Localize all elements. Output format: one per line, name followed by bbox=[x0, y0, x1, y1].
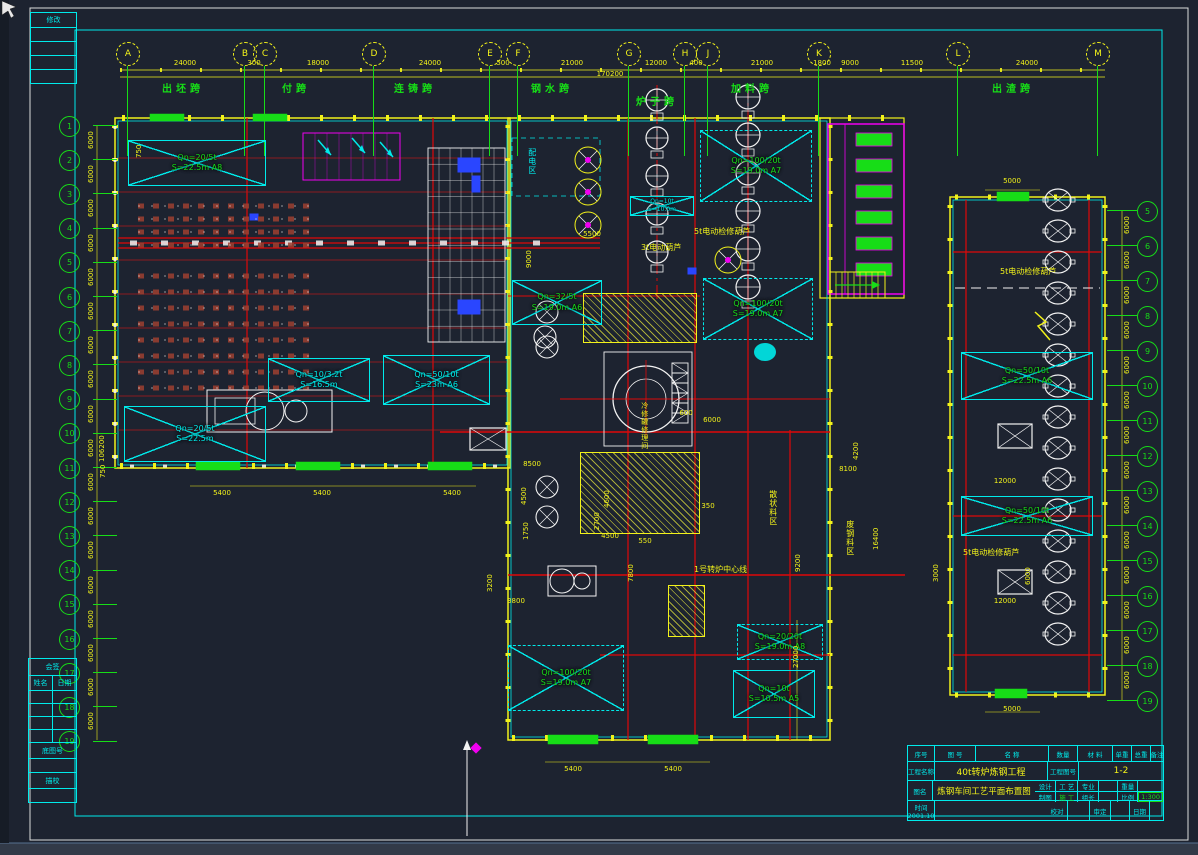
dim-label: 5400 bbox=[213, 490, 231, 498]
centerline-label: 1号转炉中心线 bbox=[694, 566, 747, 575]
crane-label: Qn=20/20tS=19.0m A8 bbox=[737, 624, 823, 660]
hoist-note: 5t电动检修葫芦 bbox=[1000, 268, 1056, 277]
dim-label: 6000 bbox=[88, 610, 96, 628]
crane-label: Qn=32/5tS=19.0m A6 bbox=[512, 280, 602, 325]
tb-check: 校对 bbox=[1047, 801, 1067, 820]
dim-label: 350 bbox=[701, 503, 714, 511]
grid-bubble-top: H bbox=[673, 42, 697, 66]
axis-stub-top bbox=[1097, 66, 1098, 156]
dim-label: 6000 bbox=[88, 713, 96, 731]
grid-bubble-right: 16 bbox=[1137, 586, 1158, 607]
crane-span-symbol: Qn=50/10tS=22.5m A6 bbox=[961, 352, 1093, 400]
dim-label: 6000 bbox=[1124, 671, 1132, 689]
crane-span-symbol: Qn=20/5tS=22.5m A8 bbox=[128, 140, 266, 186]
grid-bubble-top: K bbox=[807, 42, 831, 66]
tb-approve: 审定 bbox=[1089, 801, 1110, 820]
crane-label: Qn=100/20tS=19.0m A7 bbox=[508, 645, 624, 711]
grid-bubble-right: 11 bbox=[1137, 411, 1158, 432]
axis-stub-left bbox=[93, 501, 117, 502]
axis-stub-right bbox=[1107, 455, 1137, 456]
grid-bubble-right: 5 bbox=[1137, 201, 1158, 222]
crane-label: Qn=50/10tS=22.5m A6 bbox=[961, 496, 1093, 536]
dim-label: 6000 bbox=[88, 473, 96, 491]
grid-bubble-left: 2 bbox=[59, 150, 80, 171]
axis-stub-top bbox=[517, 66, 518, 156]
crane-span-symbol: Qn=32/5tS=19.0m A6 bbox=[512, 280, 602, 325]
dim-label: 6000 bbox=[88, 678, 96, 696]
grid-bubble-left: 16 bbox=[59, 629, 80, 650]
grid-bubble-left: 11 bbox=[59, 458, 80, 479]
dim-label: 750 bbox=[136, 145, 144, 158]
axis-stub-top bbox=[489, 66, 490, 156]
crane-label: Qn=50/10tS=22.5m A6 bbox=[961, 352, 1093, 400]
tb-project-label: 工程名称 bbox=[908, 762, 934, 780]
dim-label: 6000 bbox=[703, 417, 721, 425]
axis-stub-top bbox=[373, 66, 374, 156]
tb-craft: 工 艺 bbox=[1055, 781, 1077, 791]
zone-label: 配电区 bbox=[527, 148, 536, 175]
grid-bubble-top: E bbox=[478, 42, 502, 66]
tb-project-name: 40t转炉炼钢工程 bbox=[934, 762, 1047, 780]
tb-h-material: 材 料 bbox=[1077, 746, 1112, 761]
dim-label: 1750 bbox=[523, 522, 531, 540]
axis-stub-left bbox=[93, 364, 117, 365]
grid-bubble-top: F bbox=[506, 42, 530, 66]
dim-label: 6000 bbox=[88, 542, 96, 560]
grid-bubble-top: D bbox=[362, 42, 386, 66]
axis-stub-left bbox=[93, 741, 117, 742]
axis-stub-left bbox=[93, 433, 117, 434]
grid-bubble-left: 12 bbox=[59, 492, 80, 513]
axis-stub-right bbox=[1107, 700, 1137, 701]
dim-label: 6000 bbox=[88, 371, 96, 389]
dim-label: 6000 bbox=[88, 131, 96, 149]
dim-label: 4500 bbox=[521, 487, 529, 505]
grid-bubble-top: L bbox=[946, 42, 970, 66]
grid-bubble-left: 13 bbox=[59, 526, 80, 547]
dim-label: 5400 bbox=[443, 490, 461, 498]
tb-h-qty: 数量 bbox=[1048, 746, 1077, 761]
dim-label: 11500 bbox=[901, 60, 923, 68]
hoist-note: 5t电动检修葫芦 bbox=[694, 228, 750, 237]
tb-sheet-no: 1-2 bbox=[1078, 762, 1163, 780]
dim-label: 5400 bbox=[564, 766, 582, 774]
countersign-header: 会签 bbox=[29, 659, 76, 675]
tb-drawing-label: 图名 bbox=[908, 781, 932, 800]
crane-span-symbol: Qn=50/10tS=22.5m A6 bbox=[961, 496, 1093, 536]
dim-label: 12000 bbox=[645, 60, 667, 68]
crane-span-symbol: Qn=20/20tS=19.0m A8 bbox=[737, 624, 823, 660]
span-label: 钢水跨 bbox=[531, 84, 573, 95]
crane-span-symbol: Qn=100/20tS=19.0m A7 bbox=[703, 278, 813, 340]
dim-label: 24000 bbox=[174, 60, 196, 68]
crane-label: Qn=10tS=10.0m bbox=[630, 196, 694, 216]
grid-bubble-left: 4 bbox=[59, 218, 80, 239]
dim-label: 6000 bbox=[88, 644, 96, 662]
crane-label: Qn=100/20tS=19.0m A7 bbox=[703, 278, 813, 340]
grid-bubble-left: 6 bbox=[59, 287, 80, 308]
axis-stub-top bbox=[684, 66, 685, 156]
dim-label: 18000 bbox=[307, 60, 329, 68]
tb-scale-label: 比例 bbox=[1117, 792, 1137, 802]
dim-label: 7800 bbox=[628, 564, 636, 582]
grid-bubble-top: J bbox=[696, 42, 720, 66]
crane-span-symbol: Qn=10tS=10.5m A5 bbox=[733, 670, 815, 718]
crane-span-symbol: Qn=10tS=10.0m bbox=[630, 196, 694, 216]
grid-bubble-right: 13 bbox=[1137, 481, 1158, 502]
trace-check: 描校 bbox=[29, 773, 76, 788]
dim-label: 4200 bbox=[853, 442, 861, 460]
dim-label: 12000 bbox=[994, 598, 1016, 606]
crane-label: Qn=10/3.2tS=16.5m bbox=[268, 358, 370, 402]
dim-label: 6000 bbox=[1025, 567, 1033, 585]
dim-label: 6000 bbox=[88, 405, 96, 423]
tb-h-name: 名 称 bbox=[975, 746, 1048, 761]
grid-bubble-right: 10 bbox=[1137, 376, 1158, 397]
grid-bubble-right: 7 bbox=[1137, 271, 1158, 292]
crane-span-symbol: Qn=10/3.2tS=16.5m bbox=[268, 358, 370, 402]
axis-stub-left bbox=[93, 125, 117, 126]
revision-table: 修改 bbox=[30, 12, 77, 84]
grid-bubble-top: C bbox=[253, 42, 277, 66]
dim-label: 6000 bbox=[1124, 636, 1132, 654]
axis-stub-right bbox=[1107, 560, 1137, 561]
grid-bubble-right: 14 bbox=[1137, 516, 1158, 537]
dim-label: 8500 bbox=[523, 461, 541, 469]
axis-stub-right bbox=[1107, 595, 1137, 596]
span-label: 炉子跨 bbox=[636, 97, 678, 108]
zone-label: 散状料区 bbox=[768, 490, 777, 526]
dim-label: 6000 bbox=[1124, 566, 1132, 584]
tb-h-totalweight: 总重 bbox=[1131, 746, 1150, 761]
countersign-col-name: 姓名 bbox=[29, 676, 52, 690]
dim-label: 5500 bbox=[583, 231, 601, 239]
span-label: 加料跨 bbox=[731, 84, 773, 95]
grid-bubble-left: 1 bbox=[59, 116, 80, 137]
grid-bubble-top: G bbox=[617, 42, 641, 66]
grid-bubble-right: 8 bbox=[1137, 306, 1158, 327]
dim-label: 24000 bbox=[1016, 60, 1038, 68]
countersign-table: 会签 姓名 日期 底图号 描校 bbox=[28, 658, 77, 803]
dim-label: 6000 bbox=[88, 268, 96, 286]
span-label: 付跨 bbox=[282, 84, 310, 95]
dim-label: 6000 bbox=[88, 336, 96, 354]
tb-major: 专业 bbox=[1077, 781, 1098, 791]
crane-label: Qn=20/5tS=22.5m A8 bbox=[128, 140, 266, 186]
zone-label: 冷修罐修理间 bbox=[640, 402, 648, 450]
dim-label: 12000 bbox=[994, 478, 1016, 486]
crane-label: Qn=100/20tS=19.0m A7 bbox=[700, 130, 812, 202]
grid-bubble-left: 7 bbox=[59, 321, 80, 342]
dim-label: 16400 bbox=[873, 528, 881, 550]
dim-label: 5000 bbox=[1003, 706, 1021, 714]
axis-stub-top bbox=[628, 66, 629, 156]
title-block: 序号 图 号 名 称 数量 材 料 单重 总重 备注 工程名称 40t转炉炼钢工… bbox=[907, 745, 1164, 821]
dim-label: 6000 bbox=[1124, 216, 1132, 234]
dim-label: 9200 bbox=[795, 554, 803, 572]
base-drawing-no: 底图号 bbox=[29, 743, 76, 758]
dim-label: 9000 bbox=[526, 250, 534, 268]
axis-stub-right bbox=[1107, 245, 1137, 246]
dim-label: 6000 bbox=[88, 200, 96, 218]
dim-label: 5000 bbox=[1003, 178, 1021, 186]
dim-label: 6000 bbox=[1124, 391, 1132, 409]
tb-time-label: 时间 bbox=[915, 802, 928, 812]
cursor-icon bbox=[1, 0, 23, 22]
axis-stub-left bbox=[93, 296, 117, 297]
dim-label: 5400 bbox=[664, 766, 682, 774]
dim-label: 6000 bbox=[1124, 321, 1132, 339]
grid-bubble-right: 19 bbox=[1137, 691, 1158, 712]
axis-stub-left bbox=[93, 672, 117, 673]
foundation-hatch bbox=[668, 585, 705, 637]
tb-scale-value: 1:300 bbox=[1138, 792, 1163, 802]
dim-label: 4600 bbox=[604, 490, 612, 508]
axis-stub-left bbox=[93, 159, 117, 160]
axis-stub-right bbox=[1107, 280, 1137, 281]
axis-stub-right bbox=[1107, 315, 1137, 316]
revision-header: 修改 bbox=[31, 13, 76, 27]
dim-label: 21000 bbox=[751, 60, 773, 68]
dim-label: 6000 bbox=[1124, 496, 1132, 514]
axis-stub-right bbox=[1107, 420, 1137, 421]
crane-label: Qn=50/10tS=23m A6 bbox=[383, 355, 490, 405]
grid-bubble-top: M bbox=[1086, 42, 1110, 66]
dim-label: 5400 bbox=[313, 490, 331, 498]
axis-stub-left bbox=[93, 638, 117, 639]
crane-span-symbol: Qn=20/5tS=22.5m bbox=[124, 406, 266, 462]
span-label: 出渣跨 bbox=[992, 84, 1034, 95]
tb-h-unitweight: 单重 bbox=[1112, 746, 1131, 761]
dim-label: 8100 bbox=[839, 466, 857, 474]
dim-label: 6000 bbox=[1124, 356, 1132, 374]
axis-stub-right bbox=[1107, 385, 1137, 386]
dim-label: 24000 bbox=[419, 60, 441, 68]
tb-drawing-name: 炼钢车间工艺平面布置图 bbox=[932, 781, 1035, 800]
dim-total-label: 106200 bbox=[99, 435, 107, 462]
dim-label: 6000 bbox=[88, 302, 96, 320]
tb-leader: 组长 bbox=[1077, 792, 1098, 802]
axis-stub-top bbox=[957, 66, 958, 156]
dim-label: 6000 bbox=[88, 234, 96, 252]
dim-label: 4500 bbox=[601, 533, 619, 541]
axis-stub-left bbox=[93, 262, 117, 263]
dim-label: 27000 bbox=[793, 646, 801, 668]
axis-stub-left bbox=[93, 706, 117, 707]
grid-bubble-right: 15 bbox=[1137, 551, 1158, 572]
grid-bubble-left: 8 bbox=[59, 355, 80, 376]
tb-construct: 施 工 bbox=[1055, 792, 1077, 802]
tb-date: 日期 bbox=[1129, 801, 1149, 820]
dim-label: 6000 bbox=[1124, 286, 1132, 304]
dim-label: 3200 bbox=[487, 574, 495, 592]
axis-stub-left bbox=[93, 193, 117, 194]
dim-label: 6000 bbox=[88, 165, 96, 183]
axis-stub-right bbox=[1107, 665, 1137, 666]
hoist-note: 5t电动检修葫芦 bbox=[963, 549, 1019, 558]
axis-stub-right bbox=[1107, 350, 1137, 351]
zone-label: 废钢料区 bbox=[845, 520, 854, 556]
dim-label: 6000 bbox=[1124, 426, 1132, 444]
crane-label: Qn=20/5tS=22.5m bbox=[124, 406, 266, 462]
dim-label: 6000 bbox=[1124, 601, 1132, 619]
hoist-note: 3t电动葫芦 bbox=[641, 244, 681, 253]
dim-label: 550 bbox=[638, 538, 651, 546]
crane-span-symbol: Qn=100/20tS=19.0m A7 bbox=[700, 130, 812, 202]
cad-canvas[interactable]: 修改 会签 姓名 日期 底图号 描校 序号 图 号 名 称 数量 材 料 单重 … bbox=[0, 0, 1198, 855]
dim-label: 21000 bbox=[561, 60, 583, 68]
grid-bubble-right: 18 bbox=[1137, 656, 1158, 677]
dim-label: 2700 bbox=[594, 512, 602, 530]
tb-design: 设计 bbox=[1035, 781, 1055, 791]
countersign-col-date: 日期 bbox=[52, 676, 76, 690]
tb-sheet-label: 工程图号 bbox=[1047, 762, 1078, 780]
grid-bubble-right: 12 bbox=[1137, 446, 1158, 467]
crane-label: Qn=10tS=10.5m A5 bbox=[733, 670, 815, 718]
grid-bubble-right: 6 bbox=[1137, 236, 1158, 257]
grid-bubble-right: 9 bbox=[1137, 341, 1158, 362]
dim-label: 6000 bbox=[88, 576, 96, 594]
span-label: 出坯跨 bbox=[162, 84, 204, 95]
axis-stub-left bbox=[93, 228, 117, 229]
dim-label: 750 bbox=[100, 465, 108, 478]
dim-label: 6000 bbox=[1124, 461, 1132, 479]
grid-bubble-left: 14 bbox=[59, 560, 80, 581]
dim-label: 6000 bbox=[1124, 531, 1132, 549]
tb-time-value: 2001.10 bbox=[908, 812, 934, 820]
tb-draft: 制图 bbox=[1035, 792, 1055, 802]
tb-h-drawno: 图 号 bbox=[934, 746, 975, 761]
grid-bubble-left: 3 bbox=[59, 184, 80, 205]
tb-weight: 重量 bbox=[1117, 781, 1137, 791]
dim-label: 9000 bbox=[841, 60, 859, 68]
dim-label: 3800 bbox=[507, 598, 525, 606]
axis-stub-left bbox=[93, 604, 117, 605]
span-label: 连铸跨 bbox=[394, 84, 436, 95]
axis-stub-top bbox=[818, 66, 819, 156]
axis-stub-right bbox=[1107, 630, 1137, 631]
dim-label: 600 bbox=[679, 410, 692, 418]
grid-bubble-right: 17 bbox=[1137, 621, 1158, 642]
dim-total-label: 170200 bbox=[597, 71, 624, 79]
tb-h-index: 序号 bbox=[908, 746, 934, 761]
axis-stub-left bbox=[93, 399, 117, 400]
dim-label: 6000 bbox=[88, 507, 96, 525]
dim-label: 3000 bbox=[933, 564, 941, 582]
dim-label: 6000 bbox=[1124, 251, 1132, 269]
axis-stub-left bbox=[93, 330, 117, 331]
axis-stub-right bbox=[1107, 490, 1137, 491]
crane-span-symbol: Qn=50/10tS=23m A6 bbox=[383, 355, 490, 405]
axis-stub-left bbox=[93, 535, 117, 536]
grid-bubble-top: A bbox=[116, 42, 140, 66]
crane-span-symbol: Qn=100/20tS=19.0m A7 bbox=[508, 645, 624, 711]
axis-stub-right bbox=[1107, 210, 1137, 211]
grid-bubble-left: 9 bbox=[59, 389, 80, 410]
axis-stub-left bbox=[93, 570, 117, 571]
axis-stub-right bbox=[1107, 525, 1137, 526]
dim-label: 6000 bbox=[88, 439, 96, 457]
tb-h-remark: 备注 bbox=[1150, 746, 1163, 761]
